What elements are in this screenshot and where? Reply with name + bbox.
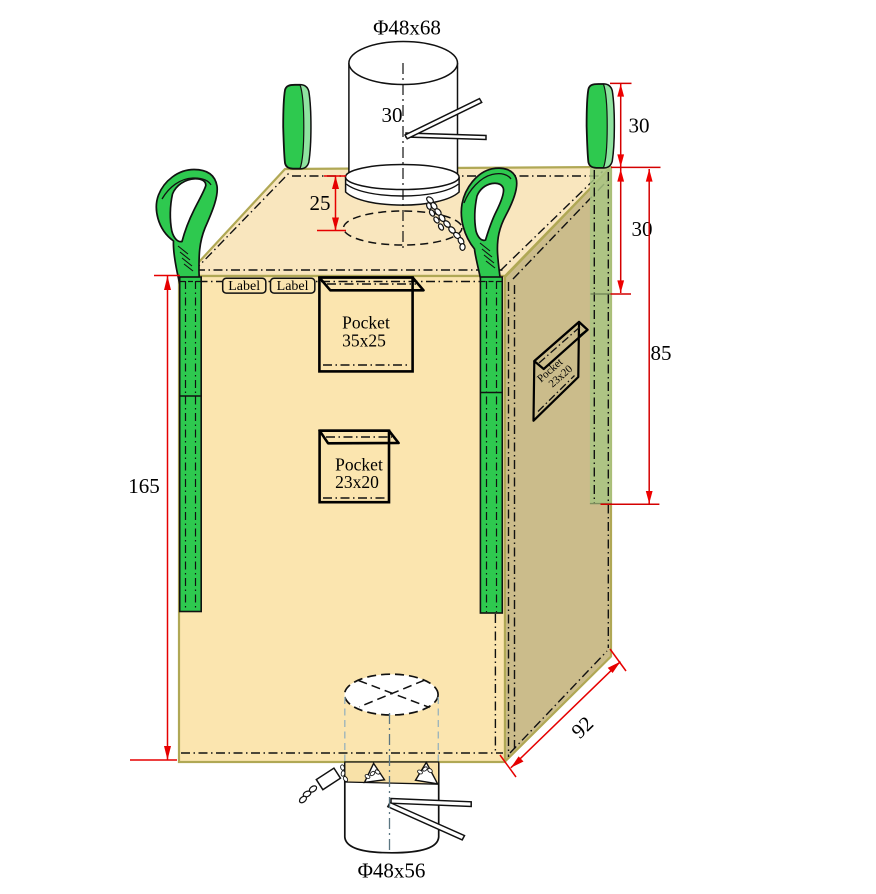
svg-text:85: 85 [651, 341, 672, 365]
svg-text:Φ48x68: Φ48x68 [373, 16, 441, 40]
svg-text:Φ48x56: Φ48x56 [358, 859, 426, 883]
svg-text:25: 25 [310, 191, 331, 215]
svg-text:23x20: 23x20 [335, 472, 379, 492]
svg-text:Pocket: Pocket [342, 313, 390, 333]
svg-text:35x25: 35x25 [342, 331, 386, 351]
svg-text:Label: Label [228, 279, 260, 294]
svg-text:30: 30 [629, 114, 650, 138]
svg-text:92: 92 [566, 711, 598, 743]
svg-text:165: 165 [128, 474, 160, 498]
svg-text:Label: Label [277, 279, 309, 294]
svg-text:30: 30 [382, 103, 403, 127]
